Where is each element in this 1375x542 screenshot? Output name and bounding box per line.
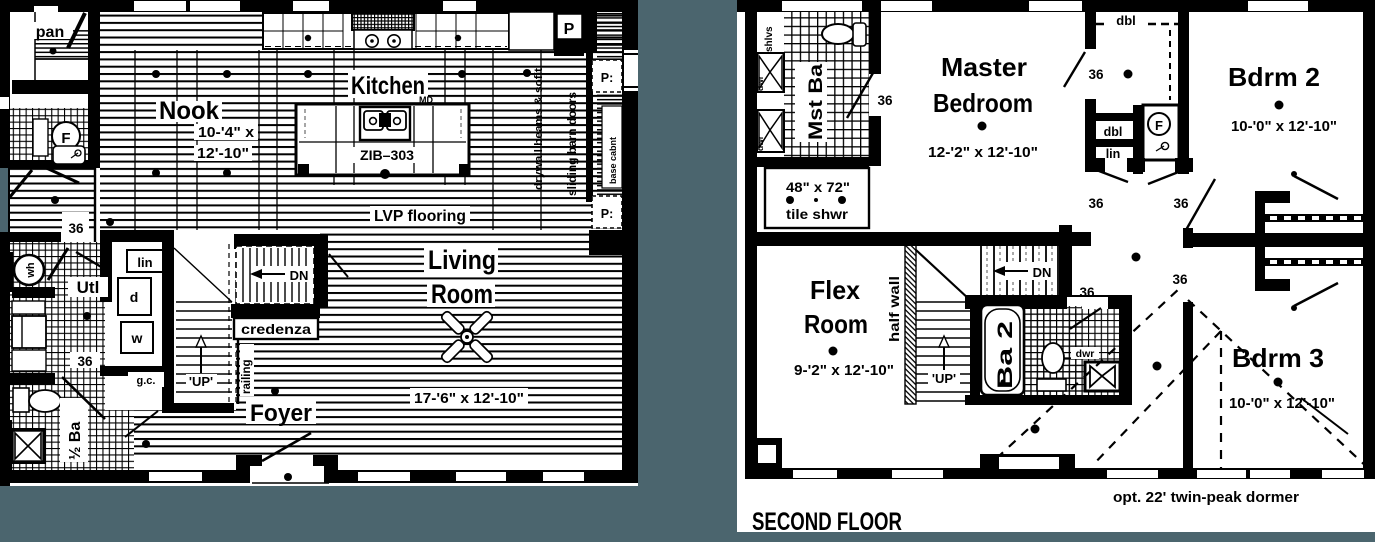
svg-text:'UP': 'UP' [189, 374, 213, 389]
svg-text:36: 36 [1088, 67, 1104, 82]
svg-text:drywall beams & sofit: drywall beams & sofit [533, 68, 545, 190]
svg-text:MD: MD [419, 95, 433, 105]
svg-text:sliding barn doors: sliding barn doors [565, 92, 579, 196]
svg-text:railing: railing [241, 359, 253, 394]
svg-text:Living: Living [428, 245, 496, 275]
svg-text:Room: Room [804, 309, 868, 339]
svg-text:Mst Ba: Mst Ba [806, 63, 827, 140]
svg-text:DN: DN [290, 268, 309, 283]
svg-text:10-'0" x 12'-10": 10-'0" x 12'-10" [1231, 119, 1337, 135]
svg-text:LVP flooring: LVP flooring [374, 208, 466, 225]
svg-text:dbl: dbl [1116, 13, 1136, 28]
svg-text:Bdrm 2: Bdrm 2 [1228, 62, 1320, 92]
svg-text:Nook: Nook [159, 97, 219, 125]
svg-text:dwr: dwr [1076, 348, 1095, 360]
svg-text:DN: DN [1033, 265, 1052, 280]
svg-text:P: P [564, 21, 575, 38]
svg-text:48" x 72": 48" x 72" [786, 179, 850, 195]
svg-text:12-'2" x 12'-10": 12-'2" x 12'-10" [928, 145, 1038, 161]
svg-text:17-'6" x 12'-10": 17-'6" x 12'-10" [414, 390, 524, 407]
svg-text:half wall: half wall [887, 276, 902, 342]
svg-text:P:: P: [601, 71, 614, 85]
svg-text:w: w [131, 330, 143, 346]
svg-text:SECOND FLOOR: SECOND FLOOR [752, 508, 902, 536]
svg-text:dbl: dbl [1104, 125, 1123, 139]
svg-text:Kitchen: Kitchen [351, 72, 425, 100]
svg-text:opt. 22' twin-peak dormer: opt. 22' twin-peak dormer [1113, 489, 1299, 506]
svg-text:d: d [130, 289, 139, 305]
svg-text:ZIB–303: ZIB–303 [360, 148, 415, 163]
svg-text:36: 36 [1172, 272, 1188, 287]
svg-text:F: F [61, 130, 70, 147]
svg-text:36: 36 [1088, 196, 1104, 211]
svg-text:36: 36 [1173, 196, 1189, 211]
svg-text:pan: pan [36, 24, 64, 41]
svg-text:P:: P: [601, 207, 614, 221]
svg-text:Master: Master [941, 52, 1027, 82]
svg-text:credenza: credenza [241, 322, 312, 337]
svg-text:36: 36 [877, 93, 893, 108]
svg-text:lin: lin [137, 255, 152, 270]
svg-text:36: 36 [77, 354, 93, 369]
svg-text:Bdrm 3: Bdrm 3 [1232, 343, 1324, 373]
svg-text:shlvs: shlvs [764, 26, 775, 52]
svg-text:F: F [1155, 118, 1163, 133]
svg-text:½ Ba: ½ Ba [67, 422, 84, 460]
svg-text:Flex: Flex [810, 275, 861, 305]
svg-text:lin: lin [1106, 147, 1121, 161]
svg-text:10-'4" x: 10-'4" x [198, 124, 255, 141]
svg-text:Room: Room [431, 279, 493, 309]
svg-text:10-'0" x 12'-10": 10-'0" x 12'-10" [1229, 396, 1335, 412]
svg-text:'UP': 'UP' [932, 371, 956, 386]
svg-text:wh: wh [25, 262, 37, 279]
svg-text:Foyer: Foyer [250, 400, 312, 427]
svg-text:Bedroom: Bedroom [933, 88, 1033, 118]
svg-text:base cabnt: base cabnt [608, 137, 618, 184]
svg-text:tile shwr: tile shwr [786, 206, 849, 222]
svg-text:9-'2" x 12'-10": 9-'2" x 12'-10" [794, 363, 894, 379]
svg-text:12'-10": 12'-10" [197, 145, 249, 162]
svg-text:g.c.: g.c. [137, 375, 156, 387]
svg-text:Ba 2: Ba 2 [994, 321, 1017, 389]
svg-text:36: 36 [68, 221, 84, 236]
svg-text:Utl: Utl [77, 278, 100, 297]
